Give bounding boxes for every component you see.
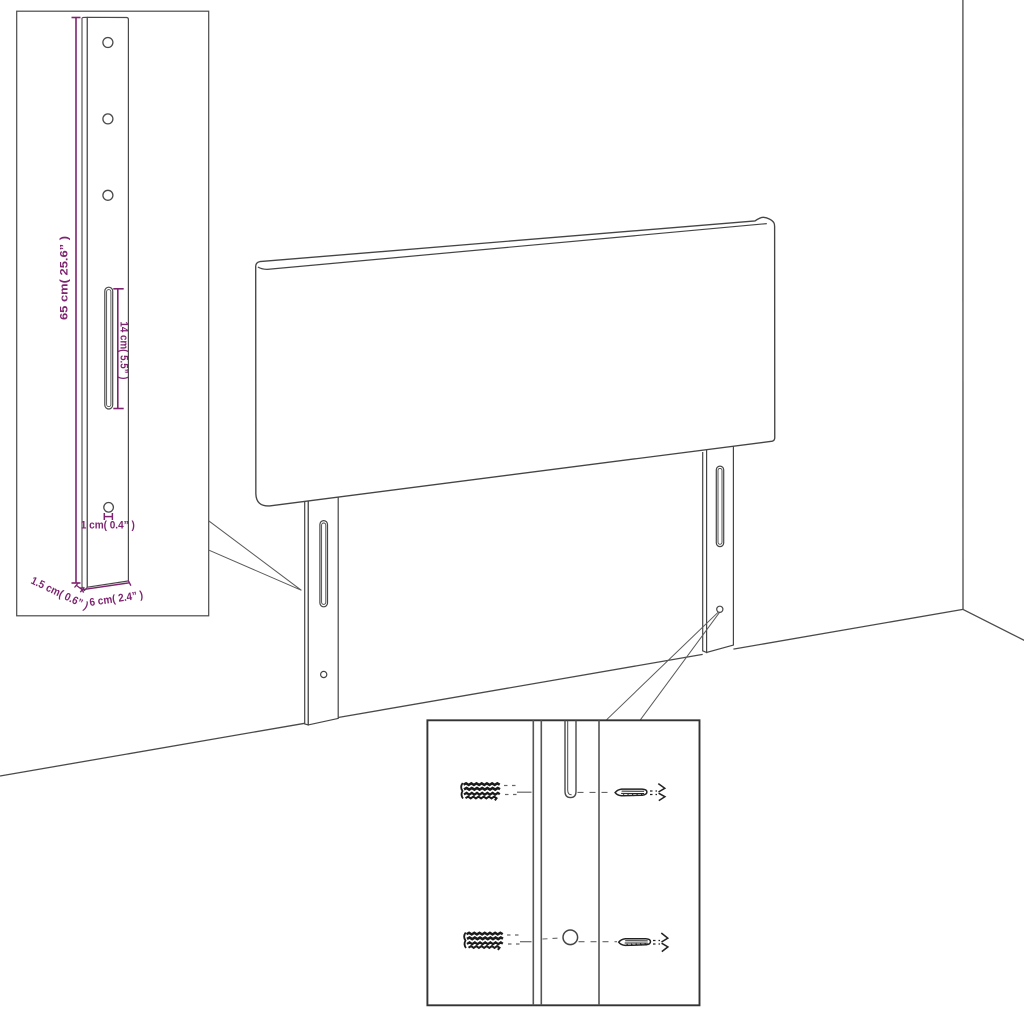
svg-text:14 cm( 5.5” ): 14 cm( 5.5” ) (117, 322, 129, 380)
svg-text:1 cm( 0.4” ): 1 cm( 0.4” ) (81, 520, 135, 532)
svg-text:65 cm( 25.6” ): 65 cm( 25.6” ) (58, 236, 70, 320)
